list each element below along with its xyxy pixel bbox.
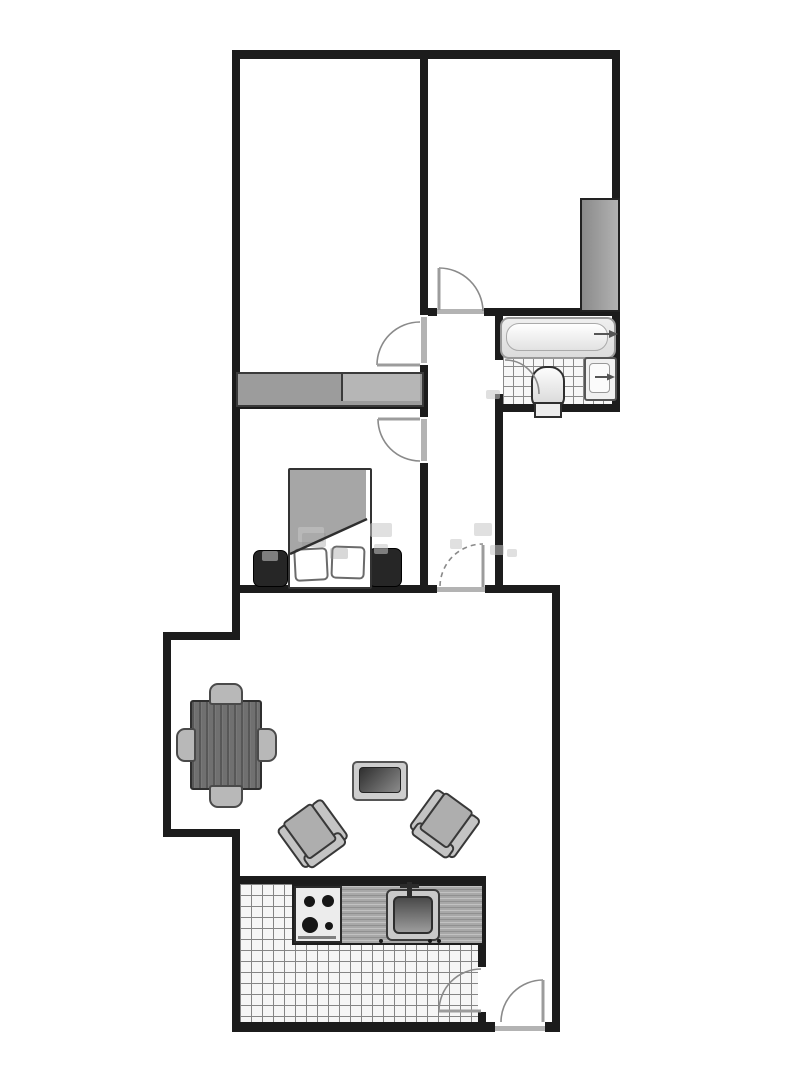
kitchen-sink-basin — [393, 896, 433, 934]
cabinet-handle-dot — [379, 939, 383, 943]
stove — [294, 886, 342, 943]
threshold-top-right-room — [437, 309, 484, 314]
watermark-fragment — [450, 539, 462, 549]
wash-basin-bowl — [589, 363, 610, 393]
wall-hall-right — [495, 412, 503, 585]
threshold-bedroom — [421, 419, 427, 461]
faucet-crossbar-icon — [400, 884, 419, 888]
coffee-table — [352, 761, 408, 801]
cabinet-handle-dot — [428, 939, 432, 943]
wall-bottom-left — [232, 1022, 495, 1032]
door-arc-top-right-room — [439, 268, 483, 311]
wall-right-lower — [552, 585, 560, 1032]
watermark-fragment — [486, 390, 500, 399]
stove-control-strip — [298, 936, 336, 939]
threshold-entrance — [495, 1026, 545, 1031]
stove-burner — [325, 922, 333, 930]
wall-bottom-right — [545, 1022, 560, 1032]
bathtub — [500, 317, 616, 359]
wall-kitchen-right-lower — [478, 1012, 486, 1022]
watermark-fragment — [374, 544, 388, 554]
toilet-tank — [534, 402, 562, 418]
door-arc-bedroom — [378, 419, 420, 461]
stove-burner — [322, 895, 334, 907]
armchair-left — [273, 795, 348, 870]
watermark-fragment — [490, 545, 504, 555]
wall-hall-left-lower — [420, 463, 428, 585]
wall-kitchen-top — [238, 876, 483, 884]
wall-left-upper — [232, 50, 240, 640]
kitchen-sink — [386, 889, 440, 941]
dining-chair-left — [176, 728, 196, 762]
wall-bump-top — [163, 632, 240, 640]
stove-burner — [302, 917, 318, 933]
cabinet-handle-dot — [437, 939, 441, 943]
wall-left-lower — [232, 829, 240, 1032]
watermark-fragment — [330, 548, 348, 559]
door-arc-hallway-living — [440, 544, 483, 586]
dining-table — [190, 700, 262, 790]
door-arc-entrance — [501, 980, 543, 1022]
wardrobe-band-top-left-room — [236, 372, 424, 407]
dining-chair-right — [257, 728, 277, 762]
armchair-right — [407, 784, 482, 859]
watermark-fragment — [370, 523, 392, 537]
watermark-fragment — [474, 523, 492, 536]
watermark-fragment — [302, 533, 326, 547]
stove-burner — [304, 896, 315, 907]
floor-plan-canvas — [0, 0, 793, 1079]
wash-basin — [584, 357, 617, 401]
bathtub-basin — [506, 323, 608, 351]
threshold-hallway-living — [437, 587, 485, 592]
wall-bump-left — [163, 632, 171, 837]
dining-chair-top — [209, 683, 243, 705]
threshold-top-left-room — [421, 317, 427, 363]
watermark-fragment — [262, 551, 278, 561]
door-arc-top-left-room — [377, 322, 420, 365]
pillow-left — [293, 547, 329, 582]
dining-chair-bottom — [209, 785, 243, 808]
wall-living-top-right — [485, 585, 560, 593]
watermark-fragment — [507, 549, 517, 557]
wall-bump-bottom — [163, 829, 240, 837]
coffee-table-top — [359, 767, 401, 793]
wardrobe-band-right-section — [341, 374, 420, 401]
wall-divider-top-rooms — [420, 50, 428, 315]
wall-tr-room-bottom-stub — [428, 308, 437, 316]
wardrobe-top-right-room — [580, 198, 620, 312]
